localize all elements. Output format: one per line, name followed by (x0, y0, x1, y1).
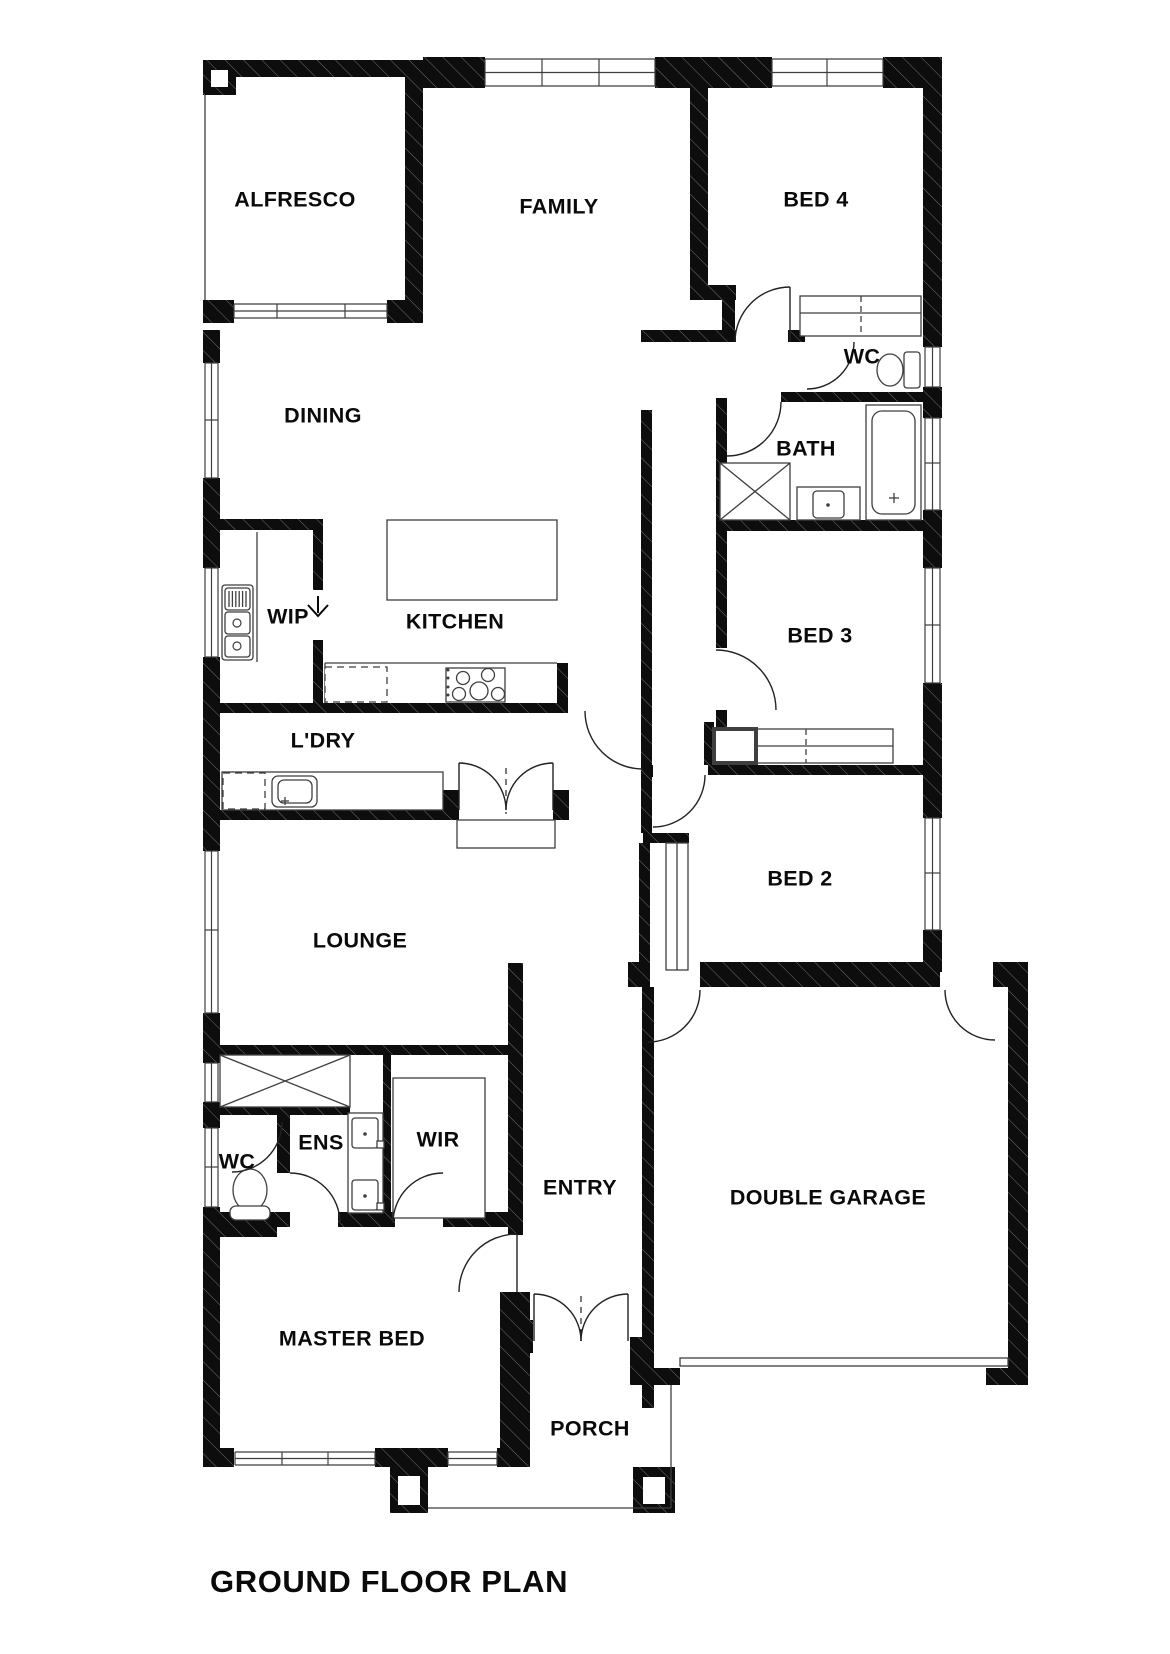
wall-segment (628, 962, 648, 987)
garage-door (680, 1358, 1008, 1366)
room-label-bed2: BED 2 (767, 867, 832, 891)
bed4-door (735, 287, 790, 342)
window (448, 1450, 497, 1467)
wall-segment (986, 1368, 1028, 1385)
cooktop-burner (482, 669, 495, 682)
laundry-trough-bowl (278, 780, 312, 803)
bed3-robe-shelf (714, 729, 756, 763)
window (203, 363, 220, 478)
vanity-handle (377, 1141, 384, 1148)
wall-segment (781, 392, 923, 402)
cooktop-dot (447, 694, 450, 697)
wip-entry-arrow-icon (308, 596, 328, 616)
wall-segment (553, 790, 569, 820)
window (235, 1450, 375, 1467)
wall-segment (513, 1353, 530, 1467)
wall-segment (923, 683, 942, 818)
wall-segment (387, 300, 423, 323)
window (923, 568, 942, 683)
washer-space (223, 773, 265, 809)
wall-segment (923, 510, 942, 569)
wall-segment (203, 1222, 277, 1237)
wall-segment (423, 57, 485, 88)
room-label-master: MASTER BED (279, 1327, 425, 1351)
room-label-ens: ENS (298, 1131, 343, 1155)
wall-segment (508, 1055, 523, 1235)
wall-segment (655, 57, 772, 88)
toilet-icon (877, 354, 903, 386)
wall-segment (508, 963, 523, 1055)
cooktop-burner (453, 688, 466, 701)
room-label-wc-upper: WC (844, 345, 881, 369)
floor-plan-page: ALFRESCO FAMILY BED 4 WC DINING BATH BED… (0, 0, 1170, 1654)
window (234, 302, 387, 320)
cooktop-dot (447, 677, 450, 680)
wall-segment (203, 703, 567, 713)
entry-door-left (534, 1294, 581, 1341)
wall-segment (700, 962, 923, 987)
wall-segment (708, 765, 923, 775)
room-label-bath: BATH (776, 437, 836, 461)
room-label-bed4: BED 4 (783, 188, 848, 212)
room-label-entry: ENTRY (543, 1176, 617, 1200)
wall-segment (557, 663, 568, 713)
wall-segment (203, 1207, 220, 1451)
wall-segment (203, 657, 220, 851)
wall-segment (690, 57, 708, 287)
wall-segment (203, 330, 220, 363)
window (203, 1128, 220, 1207)
window (923, 347, 942, 387)
window (203, 568, 220, 657)
wall-segment (203, 810, 459, 820)
cooktop-burner (470, 682, 488, 700)
wall-segment (375, 1448, 448, 1467)
room-label-wir: WIR (417, 1128, 460, 1152)
wall-segment (405, 62, 423, 318)
bed2-door (653, 775, 705, 827)
cooktop-burner (457, 672, 470, 685)
room-label-family: FAMILY (519, 195, 598, 219)
post-inner (211, 70, 228, 87)
wall-segment (1008, 987, 1028, 1385)
wall-segment (993, 962, 1028, 987)
room-label-wc-lower: WC (219, 1150, 256, 1174)
plan-title: GROUND FLOOR PLAN (210, 1564, 568, 1599)
window (923, 418, 942, 510)
room-label-dining: DINING (284, 404, 362, 428)
room-label-bed3: BED 3 (787, 624, 852, 648)
wall-segment (641, 765, 653, 777)
toilet-cistern (904, 352, 920, 388)
room-label-alfresco: ALFRESCO (234, 188, 355, 212)
dishwasher-space (325, 667, 387, 702)
wall-segment (722, 298, 735, 333)
bed3-door (716, 650, 776, 710)
wall-segment (313, 519, 323, 590)
wall-segment (716, 520, 923, 531)
master-bed-door (459, 1234, 517, 1292)
window (923, 818, 942, 930)
ens-door (290, 1173, 340, 1223)
vanity-handle (377, 1203, 384, 1210)
wall-segment (641, 330, 736, 342)
wall-segment (313, 640, 323, 703)
cooktop-burner (492, 688, 505, 701)
room-label-ldry: L'DRY (291, 729, 356, 753)
cooktop-dot (447, 669, 450, 672)
entry-door-right (581, 1294, 628, 1341)
toilet-icon (233, 1169, 267, 1211)
post-inner (398, 1476, 420, 1505)
room-label-porch: PORCH (550, 1417, 630, 1441)
wall-segment (277, 1113, 290, 1173)
window (203, 1063, 220, 1102)
entry-garage-door (648, 990, 700, 1042)
wall-segment (203, 1448, 234, 1467)
wall-segment (690, 285, 736, 300)
window (203, 851, 220, 1013)
window (772, 57, 883, 88)
toilet-cistern (230, 1206, 270, 1220)
bath-door (727, 402, 781, 456)
wall-segment (513, 1320, 533, 1353)
room-label-wip: WIP (267, 605, 309, 629)
kitchen-island (387, 520, 557, 600)
wall-segment (203, 1102, 220, 1128)
laundry-door-right (506, 763, 553, 810)
wall-segment (220, 519, 322, 530)
room-label-lounge: LOUNGE (313, 929, 407, 953)
wall-segment (203, 1045, 523, 1055)
wall-segment (923, 387, 942, 418)
wall-segment (643, 833, 689, 843)
post-inner (643, 1477, 665, 1504)
wall-segment (203, 478, 220, 568)
hall-door (585, 711, 643, 769)
wall-segment (383, 1055, 391, 1212)
garage-side-door (945, 990, 995, 1040)
wall-segment (443, 790, 459, 820)
window (485, 57, 655, 88)
wall-segment (203, 300, 234, 323)
cooktop-dot (447, 686, 450, 689)
wall-segment (630, 1337, 650, 1385)
room-label-garage: DOUBLE GARAGE (730, 1186, 926, 1210)
laundry-landing (457, 820, 555, 848)
room-label-kitchen: KITCHEN (406, 610, 504, 634)
laundry-door-left (459, 763, 506, 810)
wall-segment (338, 1212, 395, 1227)
wall-segment (923, 57, 942, 347)
floor-plan-canvas: ALFRESCO FAMILY BED 4 WC DINING BATH BED… (0, 0, 1170, 1654)
wall-segment (923, 962, 940, 987)
wall-segment (203, 1013, 220, 1063)
